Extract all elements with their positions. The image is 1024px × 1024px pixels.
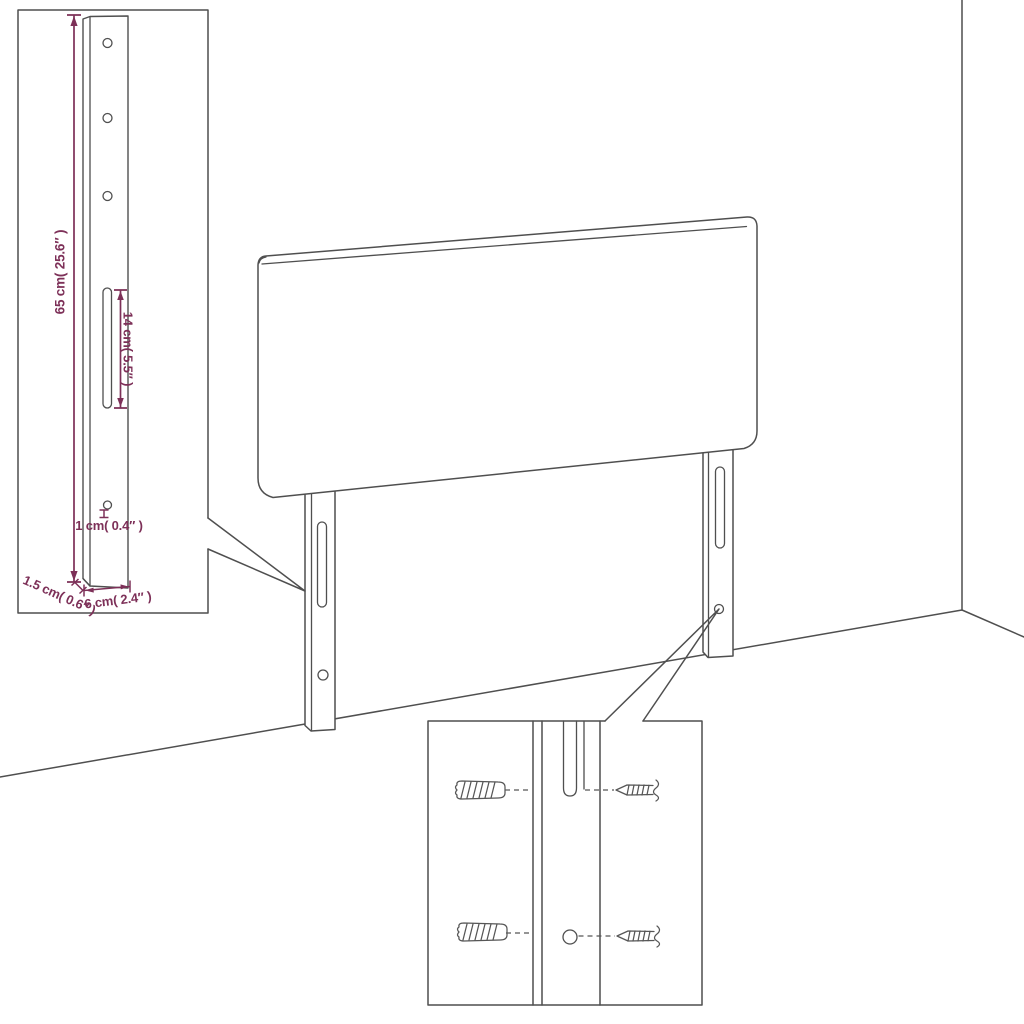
dimension-height-label: 65 cm( 25.6″ ) bbox=[53, 230, 68, 315]
screw-top-threads bbox=[627, 785, 649, 795]
wall-plug-bottom bbox=[458, 923, 508, 941]
wall-plug-top bbox=[456, 781, 506, 799]
right-leg-slot bbox=[716, 467, 725, 548]
leg-detail-callout-lines bbox=[208, 518, 305, 591]
headboard bbox=[258, 217, 757, 498]
wall-plug-top-hatch bbox=[461, 782, 495, 798]
left-leg bbox=[305, 468, 335, 731]
hardware-slot-closeup bbox=[564, 721, 577, 796]
wall-plug-bottom-hatch bbox=[463, 924, 497, 940]
dimension-hole-label: 1 cm( 0.4″ ) bbox=[75, 518, 142, 533]
dimension-height-line bbox=[67, 15, 81, 582]
dimension-width-label: 6 cm( 2.4″ ) bbox=[83, 588, 152, 611]
floor-line-left bbox=[0, 610, 962, 777]
hardware-leg-strip bbox=[533, 721, 600, 1005]
screw-top-end-squiggle bbox=[654, 780, 659, 801]
screw-bottom-threads bbox=[628, 931, 650, 941]
screw-top bbox=[616, 780, 659, 801]
dimension-slot-label: 14 cm( 5.5″ ) bbox=[121, 312, 136, 386]
left-leg-slot bbox=[318, 522, 327, 607]
dimension-height-arrow-bottom bbox=[70, 571, 77, 581]
dimension-height-arrow-top bbox=[70, 16, 77, 26]
screw-bottom-end-squiggle bbox=[655, 926, 660, 947]
assembly-diagram-canvas: 65 cm( 25.6″ ) 14 cm( 5.5″ ) 1 cm( 0.4″ … bbox=[0, 0, 1024, 1024]
dimension-width-arrow-left bbox=[85, 588, 94, 593]
right-leg bbox=[703, 428, 733, 658]
hardware-callout-lines bbox=[605, 609, 719, 721]
floor-line-right bbox=[962, 610, 1024, 637]
hardware-inset-border bbox=[428, 721, 702, 1005]
diagram-stage: 65 cm( 25.6″ ) 14 cm( 5.5″ ) 1 cm( 0.4″ … bbox=[0, 0, 1024, 1024]
hardware-inset bbox=[428, 609, 719, 1005]
screw-bottom bbox=[617, 926, 660, 947]
hardware-hole-closeup bbox=[563, 930, 577, 944]
dimension-height: 65 cm( 25.6″ ) bbox=[53, 15, 81, 582]
hardware-leg-edges bbox=[533, 721, 600, 1005]
